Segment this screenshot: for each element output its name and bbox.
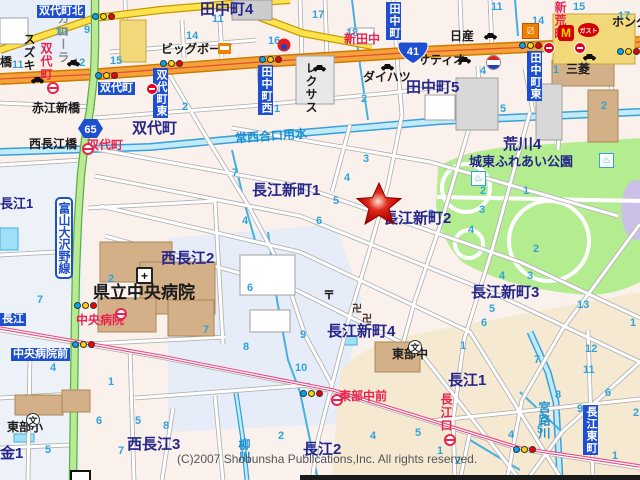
road-name-plate: 富山大沢野線 [55, 197, 73, 279]
traffic-signal-icon [74, 302, 98, 309]
block-number: 2 [533, 244, 539, 255]
car-dealer-icon [30, 76, 45, 85]
school-icon: 文 [26, 413, 40, 427]
block-number: 6 [96, 416, 102, 427]
facility-label: 三菱 [566, 63, 590, 75]
facility-label: ダイハツ [363, 71, 411, 83]
block-number: 4 [508, 430, 514, 441]
traffic-signal-icon [513, 446, 537, 453]
facility-label: 橋 [0, 56, 12, 68]
route-shield-65: 65 [77, 118, 104, 144]
gusto-restaurant-icon: ガスト [578, 23, 599, 37]
facility-label: スズキ [23, 33, 35, 72]
block-number: 4 [468, 225, 474, 236]
area-sign: 双代町 [98, 82, 135, 95]
block-number: 14 [186, 31, 198, 42]
block-number: 6 [605, 388, 611, 399]
district-label: 長江1 [448, 373, 486, 388]
car-dealer-icon [582, 53, 597, 62]
block-number: 4 [370, 431, 376, 442]
district-label: 荒川4 [503, 137, 541, 152]
block-number: 5 [45, 445, 51, 456]
block-number: 5 [415, 428, 421, 439]
convenience-store-icon [218, 43, 231, 54]
block-number: 7 [37, 295, 43, 306]
hospital-icon: + [136, 267, 153, 284]
destination-star-marker[interactable] [356, 182, 402, 231]
block-number: 3 [527, 271, 533, 282]
block-number: 10 [295, 363, 307, 374]
car-dealer-icon [312, 64, 327, 73]
bus-stop-icon [444, 434, 456, 446]
block-number: 1 [460, 341, 466, 352]
bus-stop-icon [115, 308, 127, 320]
block-number: 1 [612, 451, 618, 462]
block-number: 13 [577, 300, 589, 311]
area-sign: 双代町北 [37, 5, 85, 18]
post-office-icon: 〒 [323, 286, 335, 303]
car-dealer-icon [66, 59, 81, 68]
no-entry-sign-icon [146, 83, 158, 95]
block-number: 5 [333, 196, 339, 207]
map-canvas[interactable]: 65 41 富山大沢野線 (C)2007 Shobunsha Publicati… [0, 0, 640, 480]
block-number: 2 [601, 101, 607, 112]
block-number: 6 [316, 216, 322, 227]
district-label: 金1 [0, 446, 23, 461]
facility-label: ホンダ [612, 16, 640, 28]
district-label: 長江新町4 [327, 324, 395, 339]
area-sign: 中央病院前 [11, 348, 70, 361]
bus-stop-icon [82, 143, 94, 155]
district-label: 城東ふれあい公園 [469, 155, 573, 168]
block-number: 4 [242, 216, 248, 227]
block-number: 9 [300, 330, 306, 341]
traffic-signal-icon [519, 42, 543, 49]
block-number: 9 [84, 25, 90, 36]
block-number: 12 [585, 344, 597, 355]
block-number: 7 [232, 168, 238, 179]
area-sign: 長江 [0, 313, 26, 326]
traffic-signal-icon [300, 390, 324, 397]
block-number: 4 [344, 173, 350, 184]
facility-label: カローラ [57, 12, 69, 64]
block-number: 15 [573, 2, 585, 13]
district-label: 田中町5 [406, 80, 459, 95]
block-number: 7 [534, 355, 540, 366]
traffic-signal-icon [72, 341, 96, 348]
onsen-icon: ♨ [599, 153, 614, 168]
block-number: 8 [163, 421, 169, 432]
svg-text:65: 65 [84, 124, 96, 136]
block-number: 4 [499, 271, 505, 282]
temple-icon: 卍 [362, 310, 372, 325]
block-number: 11 [491, 2, 503, 13]
facility-label: 日産 [450, 30, 474, 42]
car-dealer-icon [483, 32, 498, 41]
block-number: 3 [363, 154, 369, 165]
block-number: 2 [361, 94, 367, 105]
block-number: 5 [500, 104, 506, 115]
mcdonalds-icon: M [558, 25, 574, 41]
car-dealer-icon [380, 63, 395, 72]
block-number: 3 [479, 205, 485, 216]
block-number: 2 [633, 408, 639, 419]
block-number: 6 [481, 318, 487, 329]
traffic-signal-icon [92, 13, 116, 20]
block-number: 7 [118, 446, 124, 457]
no-entry-sign-icon [543, 42, 555, 54]
block-number: 1 [553, 65, 559, 76]
bus-stop-label: 長江口 [440, 393, 452, 432]
bus-stop-icon [331, 394, 343, 406]
facility-label: 西長江橋 [29, 138, 77, 150]
bus-stop-icon [47, 82, 59, 94]
bridge-icon [70, 470, 91, 480]
district-label: 長江1 [0, 197, 33, 210]
district-label: 長江新町3 [471, 285, 539, 300]
district-label: 双代町 [132, 121, 177, 136]
block-number: 6 [247, 283, 253, 294]
area-sign: 田中町西 [258, 65, 273, 115]
svg-text:41: 41 [407, 46, 419, 58]
block-number: 2 [278, 431, 284, 442]
block-number: 2 [182, 102, 188, 113]
block-number: 5 [489, 304, 495, 315]
block-number: 2 [480, 186, 486, 197]
district-label: 西長江3 [127, 437, 180, 452]
district-label: 田中町4 [200, 2, 253, 17]
facility-label: 県立中央病院 [93, 284, 195, 301]
car-dealer-icon [457, 56, 472, 65]
onsen-icon: ♨ [471, 171, 486, 186]
traffic-signal-icon [617, 48, 640, 55]
block-number: 7 [203, 325, 209, 336]
water-label: 宮路川 [538, 401, 550, 440]
block-number: 8 [243, 342, 249, 353]
school-icon: 文 [408, 340, 422, 354]
traffic-signal-icon [259, 56, 283, 63]
traffic-signal-icon [160, 60, 184, 67]
block-number: 8 [555, 390, 561, 401]
area-sign: 長江東町 [583, 405, 598, 455]
facility-label: 赤江新橋 [32, 102, 80, 114]
block-number: 1 [274, 104, 280, 115]
temple-icon: 卍 [352, 300, 362, 315]
district-label: 長江新町1 [252, 183, 320, 198]
block-number: 11 [583, 365, 595, 376]
area-sign: 田中町東 [527, 51, 542, 101]
block-number: 1 [108, 377, 114, 388]
store-logo-red-icon [277, 38, 291, 52]
block-number: 4 [50, 363, 56, 374]
district-label: 西長江2 [161, 251, 214, 266]
area-sign: 田中町 [386, 2, 401, 40]
block-number: 1 [630, 318, 636, 329]
bus-stop-label: 東部中前 [339, 390, 387, 402]
copyright-text: (C)2007 Shobunsha Publications,Inc. All … [177, 452, 477, 466]
gas-station-icon [486, 55, 501, 70]
bus-stop-label: 新田中 [344, 33, 380, 45]
shop-logo-icon: 〼 [522, 23, 539, 39]
block-number: 5 [135, 416, 141, 427]
block-number: 15 [110, 56, 122, 67]
block-number: 17 [312, 10, 324, 21]
route-shield-41: 41 [396, 41, 430, 71]
traffic-signal-icon [95, 72, 119, 79]
block-number: 1 [523, 186, 529, 197]
